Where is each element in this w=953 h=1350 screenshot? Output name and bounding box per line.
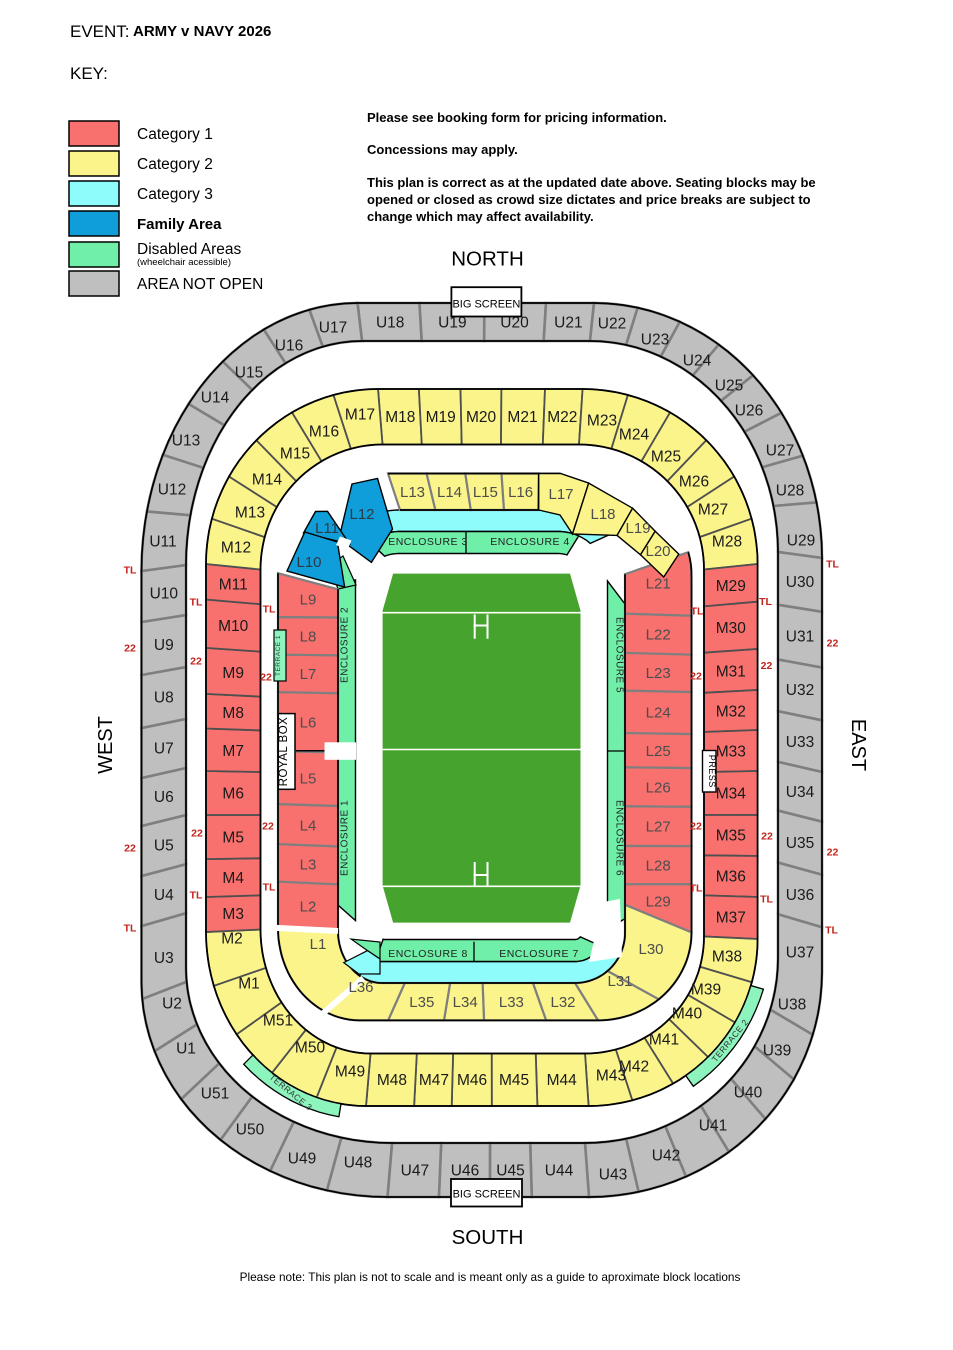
- svg-text:M14: M14: [252, 471, 283, 488]
- svg-text:M48: M48: [377, 1072, 407, 1089]
- svg-text:22: 22: [191, 828, 203, 840]
- svg-text:U50: U50: [236, 1121, 265, 1138]
- svg-text:TL: TL: [825, 925, 838, 937]
- svg-text:U21: U21: [554, 314, 582, 331]
- svg-text:U23: U23: [641, 331, 669, 348]
- svg-text:L12: L12: [349, 506, 374, 523]
- svg-text:U47: U47: [401, 1162, 429, 1179]
- svg-text:M45: M45: [499, 1072, 529, 1089]
- svg-text:Please see booking form for pr: Please see booking form for pricing info…: [367, 110, 667, 125]
- svg-text:Concessions may apply.: Concessions may apply.: [367, 142, 518, 157]
- svg-text:U32: U32: [786, 682, 814, 699]
- svg-text:22: 22: [260, 672, 272, 684]
- svg-text:L17: L17: [548, 486, 573, 503]
- svg-text:22: 22: [124, 643, 136, 655]
- svg-text:U12: U12: [158, 481, 186, 498]
- svg-text:U30: U30: [786, 574, 815, 591]
- svg-text:EAST: EAST: [847, 719, 869, 771]
- svg-text:U2: U2: [162, 995, 182, 1012]
- svg-text:ENCLOSURE 8: ENCLOSURE 8: [388, 948, 468, 960]
- svg-text:M30: M30: [716, 620, 747, 637]
- svg-text:M7: M7: [222, 743, 244, 760]
- svg-text:L22: L22: [646, 627, 671, 644]
- svg-text:L33: L33: [499, 994, 524, 1011]
- svg-text:ENCLOSURE 1: ENCLOSURE 1: [340, 800, 351, 876]
- svg-text:U33: U33: [786, 734, 814, 751]
- svg-text:M51: M51: [263, 1012, 293, 1029]
- svg-text:U42: U42: [652, 1147, 680, 1164]
- svg-text:M12: M12: [221, 539, 251, 556]
- svg-text:M40: M40: [672, 1005, 703, 1022]
- svg-text:U25: U25: [715, 377, 743, 394]
- svg-text:This plan is correct as at the: This plan is correct as at the updated d…: [367, 175, 816, 190]
- svg-text:L27: L27: [646, 819, 671, 836]
- svg-text:U49: U49: [288, 1150, 316, 1167]
- svg-text:U28: U28: [776, 482, 804, 499]
- svg-text:ENCLOSURE 2: ENCLOSURE 2: [340, 607, 351, 683]
- svg-text:L11: L11: [315, 520, 339, 537]
- svg-text:M50: M50: [295, 1039, 326, 1056]
- svg-text:U48: U48: [344, 1154, 372, 1171]
- svg-text:U10: U10: [150, 586, 179, 603]
- svg-text:M6: M6: [222, 786, 244, 803]
- svg-text:L2: L2: [300, 899, 317, 916]
- svg-text:Please note: This plan is not: Please note: This plan is not to scale a…: [240, 1270, 741, 1284]
- svg-text:U22: U22: [598, 316, 626, 333]
- svg-text:M44: M44: [547, 1072, 578, 1089]
- svg-text:ARMY v NAVY 2026: ARMY v NAVY 2026: [133, 23, 271, 40]
- svg-text:M2: M2: [221, 930, 243, 947]
- svg-text:M8: M8: [222, 705, 244, 722]
- svg-text:M37: M37: [716, 909, 746, 926]
- svg-text:TL: TL: [691, 606, 704, 618]
- svg-text:L20: L20: [645, 543, 670, 560]
- svg-text:M1: M1: [238, 975, 260, 992]
- svg-text:U9: U9: [154, 637, 174, 654]
- svg-text:TERRACE 1: TERRACE 1: [275, 635, 282, 676]
- svg-text:M28: M28: [712, 533, 742, 550]
- svg-text:U45: U45: [496, 1162, 524, 1179]
- svg-text:U37: U37: [786, 944, 814, 961]
- svg-text:U3: U3: [154, 950, 174, 967]
- svg-text:L5: L5: [300, 771, 317, 788]
- svg-text:TL: TL: [124, 565, 137, 577]
- svg-text:M11: M11: [219, 577, 248, 594]
- svg-text:U27: U27: [766, 442, 794, 459]
- svg-text:22: 22: [827, 638, 839, 650]
- svg-text:M31: M31: [716, 664, 746, 681]
- svg-text:U24: U24: [683, 352, 712, 369]
- svg-text:AREA NOT OPEN: AREA NOT OPEN: [137, 276, 263, 293]
- svg-text:22: 22: [262, 821, 274, 833]
- svg-text:L23: L23: [646, 665, 671, 682]
- svg-text:TL: TL: [690, 883, 703, 895]
- svg-text:ROYAL BOX: ROYAL BOX: [278, 717, 290, 787]
- svg-text:L8: L8: [300, 628, 317, 645]
- svg-text:U39: U39: [763, 1042, 791, 1059]
- svg-text:U46: U46: [451, 1162, 479, 1179]
- svg-text:L26: L26: [646, 779, 671, 796]
- svg-text:ENCLOSURE 5: ENCLOSURE 5: [614, 617, 625, 693]
- svg-text:U18: U18: [376, 314, 404, 331]
- svg-text:U16: U16: [275, 337, 303, 354]
- svg-text:M15: M15: [280, 445, 310, 462]
- svg-text:U6: U6: [154, 789, 174, 806]
- svg-text:L34: L34: [453, 994, 478, 1011]
- svg-text:M49: M49: [335, 1063, 365, 1080]
- svg-text:L1: L1: [310, 936, 327, 953]
- svg-text:22: 22: [690, 671, 702, 683]
- svg-text:NORTH: NORTH: [451, 248, 524, 271]
- svg-text:L35: L35: [409, 994, 434, 1011]
- svg-text:M39: M39: [691, 981, 721, 998]
- svg-text:TL: TL: [263, 882, 276, 894]
- svg-text:U29: U29: [787, 532, 815, 549]
- svg-text:L3: L3: [300, 856, 317, 873]
- svg-text:KEY:: KEY:: [70, 64, 108, 83]
- svg-text:L4: L4: [300, 817, 317, 834]
- svg-text:L10: L10: [296, 554, 321, 571]
- svg-text:opened or closed as crowd size: opened or closed as crowd size dictates …: [367, 192, 811, 207]
- svg-text:22: 22: [761, 831, 773, 843]
- svg-text:TL: TL: [190, 597, 203, 609]
- svg-text:L16: L16: [508, 484, 533, 501]
- svg-text:M23: M23: [587, 412, 617, 429]
- svg-text:L28: L28: [646, 857, 671, 874]
- svg-text:L18: L18: [590, 506, 615, 523]
- svg-text:M9: M9: [222, 665, 244, 682]
- svg-text:BIG SCREEN: BIG SCREEN: [453, 1189, 521, 1201]
- svg-text:U44: U44: [545, 1162, 574, 1179]
- svg-text:M10: M10: [218, 618, 249, 635]
- svg-text:M24: M24: [619, 426, 650, 443]
- svg-text:L9: L9: [300, 592, 317, 609]
- svg-text:U26: U26: [735, 402, 763, 419]
- svg-text:(wheelchair acessible): (wheelchair acessible): [137, 257, 231, 268]
- svg-text:ENCLOSURE 7: ENCLOSURE 7: [499, 948, 579, 960]
- svg-text:M20: M20: [466, 409, 497, 426]
- svg-text:U8: U8: [154, 690, 174, 707]
- svg-text:M5: M5: [222, 829, 244, 846]
- svg-text:M13: M13: [235, 504, 265, 521]
- svg-text:change which may affect availa: change which may affect availability.: [367, 209, 594, 224]
- svg-text:L15: L15: [473, 484, 498, 501]
- svg-text:L14: L14: [437, 484, 462, 501]
- svg-text:U34: U34: [786, 784, 815, 801]
- svg-text:U4: U4: [154, 887, 174, 904]
- svg-text:M47: M47: [419, 1072, 449, 1089]
- svg-text:Category 3: Category 3: [137, 186, 213, 203]
- svg-text:L13: L13: [400, 484, 425, 501]
- svg-text:U31: U31: [786, 628, 814, 645]
- svg-text:M4: M4: [222, 870, 244, 887]
- svg-text:U17: U17: [319, 319, 347, 336]
- svg-text:L30: L30: [638, 941, 663, 958]
- svg-text:M27: M27: [698, 501, 728, 518]
- svg-text:M29: M29: [716, 578, 746, 595]
- svg-text:M18: M18: [385, 409, 415, 426]
- svg-text:L36: L36: [348, 979, 373, 996]
- svg-text:L6: L6: [300, 715, 317, 732]
- svg-text:ENCLOSURE 6: ENCLOSURE 6: [614, 800, 625, 876]
- svg-text:U40: U40: [734, 1084, 763, 1101]
- svg-text:TL: TL: [190, 890, 203, 902]
- svg-text:PRESS: PRESS: [707, 755, 717, 788]
- svg-text:U41: U41: [699, 1117, 727, 1134]
- svg-text:TL: TL: [759, 596, 772, 608]
- svg-text:U38: U38: [778, 996, 806, 1013]
- svg-text:EVENT:: EVENT:: [70, 22, 130, 41]
- svg-text:U15: U15: [235, 364, 263, 381]
- svg-text:22: 22: [761, 660, 773, 672]
- svg-text:M3: M3: [222, 906, 244, 923]
- svg-text:M32: M32: [716, 704, 746, 721]
- svg-text:U43: U43: [599, 1166, 627, 1183]
- svg-text:22: 22: [190, 656, 202, 668]
- svg-text:Disabled Areas: Disabled Areas: [137, 241, 242, 258]
- svg-text:M19: M19: [426, 409, 456, 426]
- svg-text:M35: M35: [716, 828, 746, 845]
- svg-text:Family Area: Family Area: [137, 216, 222, 233]
- svg-text:M21: M21: [507, 409, 537, 426]
- svg-text:Category 1: Category 1: [137, 126, 213, 143]
- svg-text:U13: U13: [172, 432, 200, 449]
- svg-text:M17: M17: [345, 406, 375, 423]
- svg-text:ENCLOSURE 4: ENCLOSURE 4: [490, 536, 570, 548]
- svg-text:M33: M33: [716, 744, 746, 761]
- svg-text:U36: U36: [786, 887, 814, 904]
- svg-text:SOUTH: SOUTH: [452, 1226, 524, 1249]
- svg-text:M43: M43: [596, 1067, 626, 1084]
- svg-text:L19: L19: [625, 520, 650, 537]
- svg-text:TL: TL: [124, 923, 137, 935]
- svg-text:L29: L29: [646, 894, 671, 911]
- svg-text:22: 22: [690, 821, 702, 833]
- svg-text:M16: M16: [309, 423, 339, 440]
- svg-text:TL: TL: [263, 604, 276, 616]
- svg-text:TL: TL: [760, 894, 773, 906]
- svg-text:TL: TL: [826, 559, 839, 571]
- svg-text:M25: M25: [651, 448, 681, 465]
- svg-text:L31: L31: [607, 973, 632, 990]
- svg-text:U35: U35: [786, 835, 814, 852]
- svg-text:BIG SCREEN: BIG SCREEN: [452, 299, 520, 311]
- svg-text:M38: M38: [712, 948, 742, 965]
- svg-text:U7: U7: [154, 741, 174, 758]
- svg-text:WEST: WEST: [95, 716, 117, 774]
- svg-text:U51: U51: [201, 1085, 229, 1102]
- svg-text:M22: M22: [547, 409, 577, 426]
- svg-text:L7: L7: [300, 666, 317, 683]
- svg-text:M34: M34: [716, 786, 747, 803]
- svg-text:M26: M26: [679, 473, 709, 490]
- svg-text:L24: L24: [646, 705, 671, 722]
- svg-text:L21: L21: [646, 575, 671, 592]
- svg-text:ENCLOSURE 3: ENCLOSURE 3: [388, 536, 468, 548]
- svg-text:U5: U5: [154, 838, 174, 855]
- svg-text:L25: L25: [646, 743, 671, 760]
- svg-text:22: 22: [827, 847, 839, 859]
- svg-text:M41: M41: [649, 1031, 679, 1048]
- svg-text:22: 22: [124, 843, 136, 855]
- svg-text:Category 2: Category 2: [137, 156, 213, 173]
- svg-text:U14: U14: [201, 389, 230, 406]
- svg-text:U11: U11: [149, 533, 176, 550]
- svg-text:M36: M36: [716, 868, 746, 885]
- svg-text:U1: U1: [176, 1040, 196, 1057]
- svg-text:M46: M46: [457, 1072, 487, 1089]
- svg-text:L32: L32: [550, 994, 575, 1011]
